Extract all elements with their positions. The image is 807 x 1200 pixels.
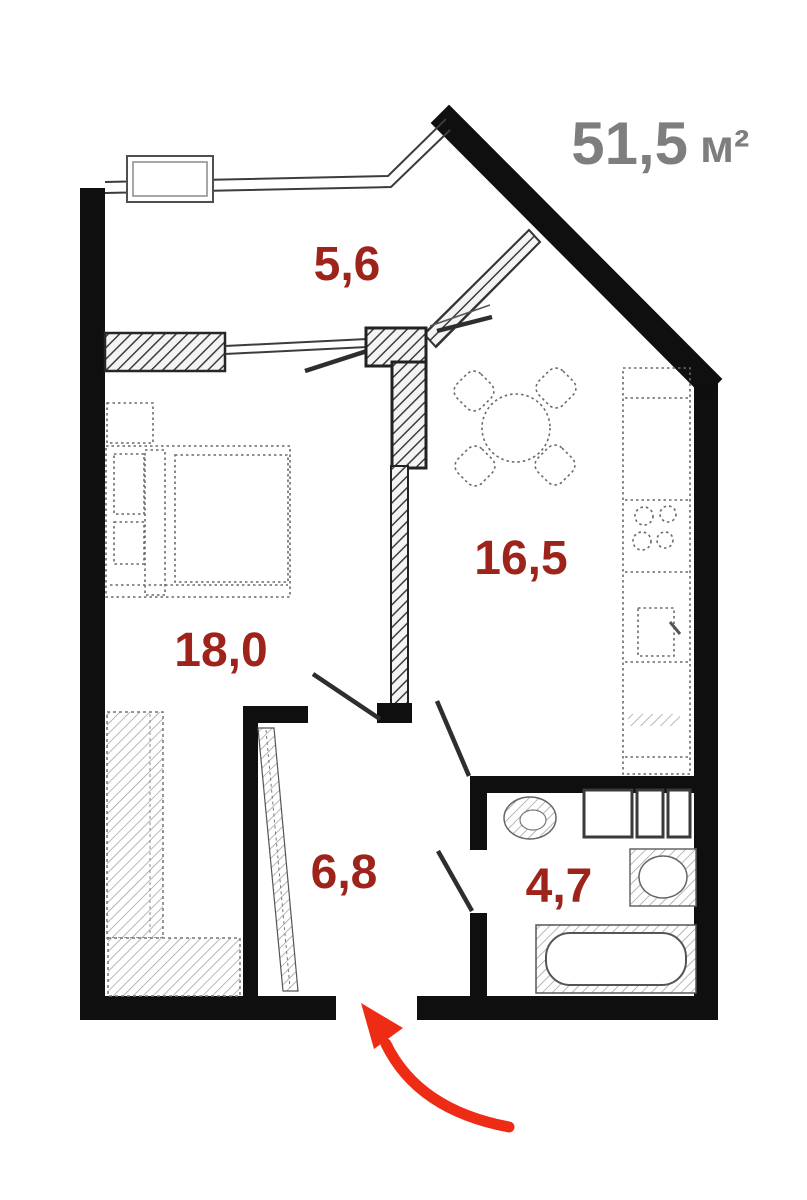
stove-burner-1	[635, 507, 653, 525]
entrance-arrow	[361, 1003, 509, 1127]
bed-pillow-1	[114, 454, 144, 514]
pier-balcony-corner	[366, 328, 426, 366]
window-sill-living	[105, 333, 225, 371]
outer-wall-bottom-left	[80, 996, 336, 1020]
stove-burner-2	[660, 506, 676, 522]
wall-end-cap	[377, 703, 412, 723]
toilet-bowl	[520, 810, 546, 830]
kitchen-faucet	[670, 622, 680, 634]
total-area-unit: м²	[700, 120, 749, 172]
bathroom-door-leaf	[438, 851, 472, 911]
washing-machine	[584, 790, 632, 837]
stove-burner-3	[633, 532, 651, 550]
nightstand	[107, 403, 153, 443]
wall-hallway-left	[243, 723, 258, 996]
chair-nw	[450, 367, 498, 415]
chair-se	[531, 441, 579, 489]
chair-sw	[451, 442, 499, 490]
outer-wall-right	[694, 378, 718, 1020]
hallway-area-label: 6,8	[311, 846, 378, 899]
wall-living-kitchen	[391, 466, 408, 706]
outer-wall-bottom-right	[417, 996, 718, 1020]
bath-cabinet-2	[668, 790, 690, 837]
chair-ne	[532, 364, 580, 412]
kitchen-sink	[638, 608, 674, 656]
bed-mattress	[175, 455, 288, 582]
window-line-lower	[225, 347, 367, 354]
kitchen-door-leaf	[437, 701, 469, 776]
bed-pillow-2	[114, 522, 144, 564]
dining-table	[482, 394, 550, 462]
living-room-area-label: 18,0	[174, 624, 267, 677]
floor-plan-drawing: 51,5 м² 5,6 18,0 16,5 6,8 4,7	[0, 0, 807, 1200]
pier-living-kitchen	[392, 362, 426, 468]
bed	[106, 446, 290, 597]
balcony-area-label: 5,6	[314, 238, 381, 291]
wall-bathroom-left-lower	[470, 913, 487, 996]
wardrobe-bottom	[108, 938, 240, 996]
balcony-ac-unit-inner	[133, 162, 207, 196]
floor-plan-page: 51,5 м² 5,6 18,0 16,5 6,8 4,7	[0, 0, 807, 1200]
bathtub-inner	[546, 933, 686, 985]
counter-hatch-band	[628, 714, 680, 726]
entrance-arrow-curve	[386, 1044, 509, 1127]
bath-sink	[639, 856, 687, 898]
wall-bathroom-left-upper	[470, 793, 487, 850]
hallway-closet-door-leaf	[258, 728, 298, 991]
wardrobe-tall	[107, 712, 163, 938]
stove-burner-4	[657, 532, 673, 548]
kitchen-counter	[623, 368, 690, 774]
entrance-arrow-head	[361, 1003, 403, 1049]
window-line-upper	[225, 339, 367, 346]
bathroom-area-label: 4,7	[526, 860, 593, 913]
living-door-leaf	[313, 674, 380, 719]
kitchen-area-label: 16,5	[474, 532, 567, 585]
total-area-value: 51,5	[571, 110, 688, 177]
bath-cabinet-1	[637, 790, 663, 837]
balcony-door-leaf-living	[305, 351, 367, 371]
outer-wall-left	[80, 188, 105, 1020]
bed-headboard	[145, 450, 165, 595]
wall-living-hallway	[243, 706, 308, 723]
